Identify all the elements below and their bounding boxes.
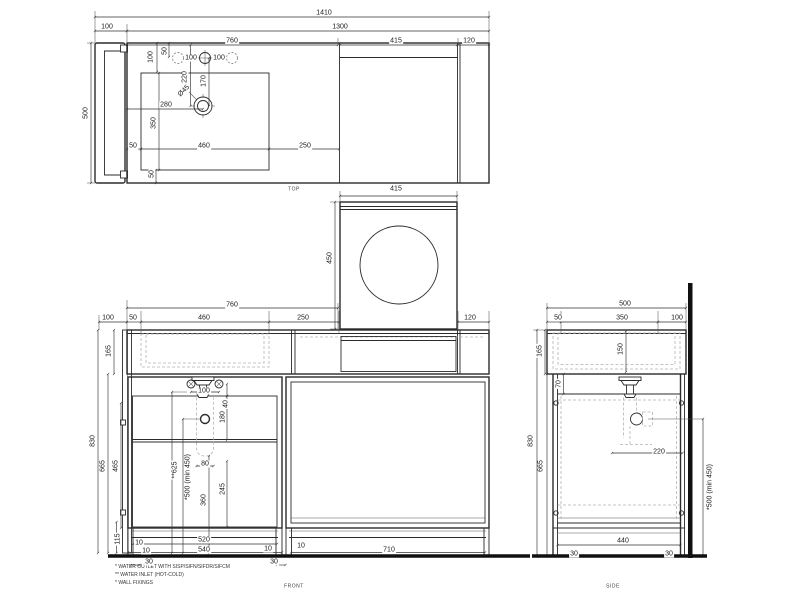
drain-fitting-front: [192, 377, 214, 398]
side-view: [532, 283, 707, 558]
countertop-plan: [127, 43, 489, 183]
wall-rail-plan: [95, 43, 128, 183]
front-dimension-lines: [98, 300, 489, 565]
technical-drawing-canvas: TOP FRONT SIDE * WATER OUTLET WITH SISP/…: [0, 0, 800, 600]
siphon-hidden-side: [620, 398, 653, 445]
top-dimension-lines: [87, 11, 489, 183]
water-outlet-front: [201, 415, 210, 424]
basin-hidden-side: [553, 333, 680, 369]
washing-machine-door: [360, 226, 438, 304]
washing-machine-view: [330, 191, 457, 329]
faucet-hole: [189, 92, 215, 118]
wall-fixings-side: [554, 401, 684, 515]
wall-section: [688, 283, 693, 558]
front-view: [98, 300, 530, 565]
vanity-cabinet-front: [128, 377, 282, 556]
cad-drawing: [0, 0, 800, 600]
countertop-side: [547, 330, 686, 374]
tap-holes: [173, 50, 238, 66]
wall-rail-front: [121, 330, 132, 553]
drain-pipe-hidden-front: [197, 398, 214, 457]
washer-plinth-front: [341, 337, 456, 372]
open-compartment-front: [286, 377, 489, 556]
basin-hidden-outline: [141, 334, 269, 367]
countertop-front: [127, 330, 489, 374]
cabinet-side: [553, 374, 685, 556]
top-view: [87, 11, 489, 183]
